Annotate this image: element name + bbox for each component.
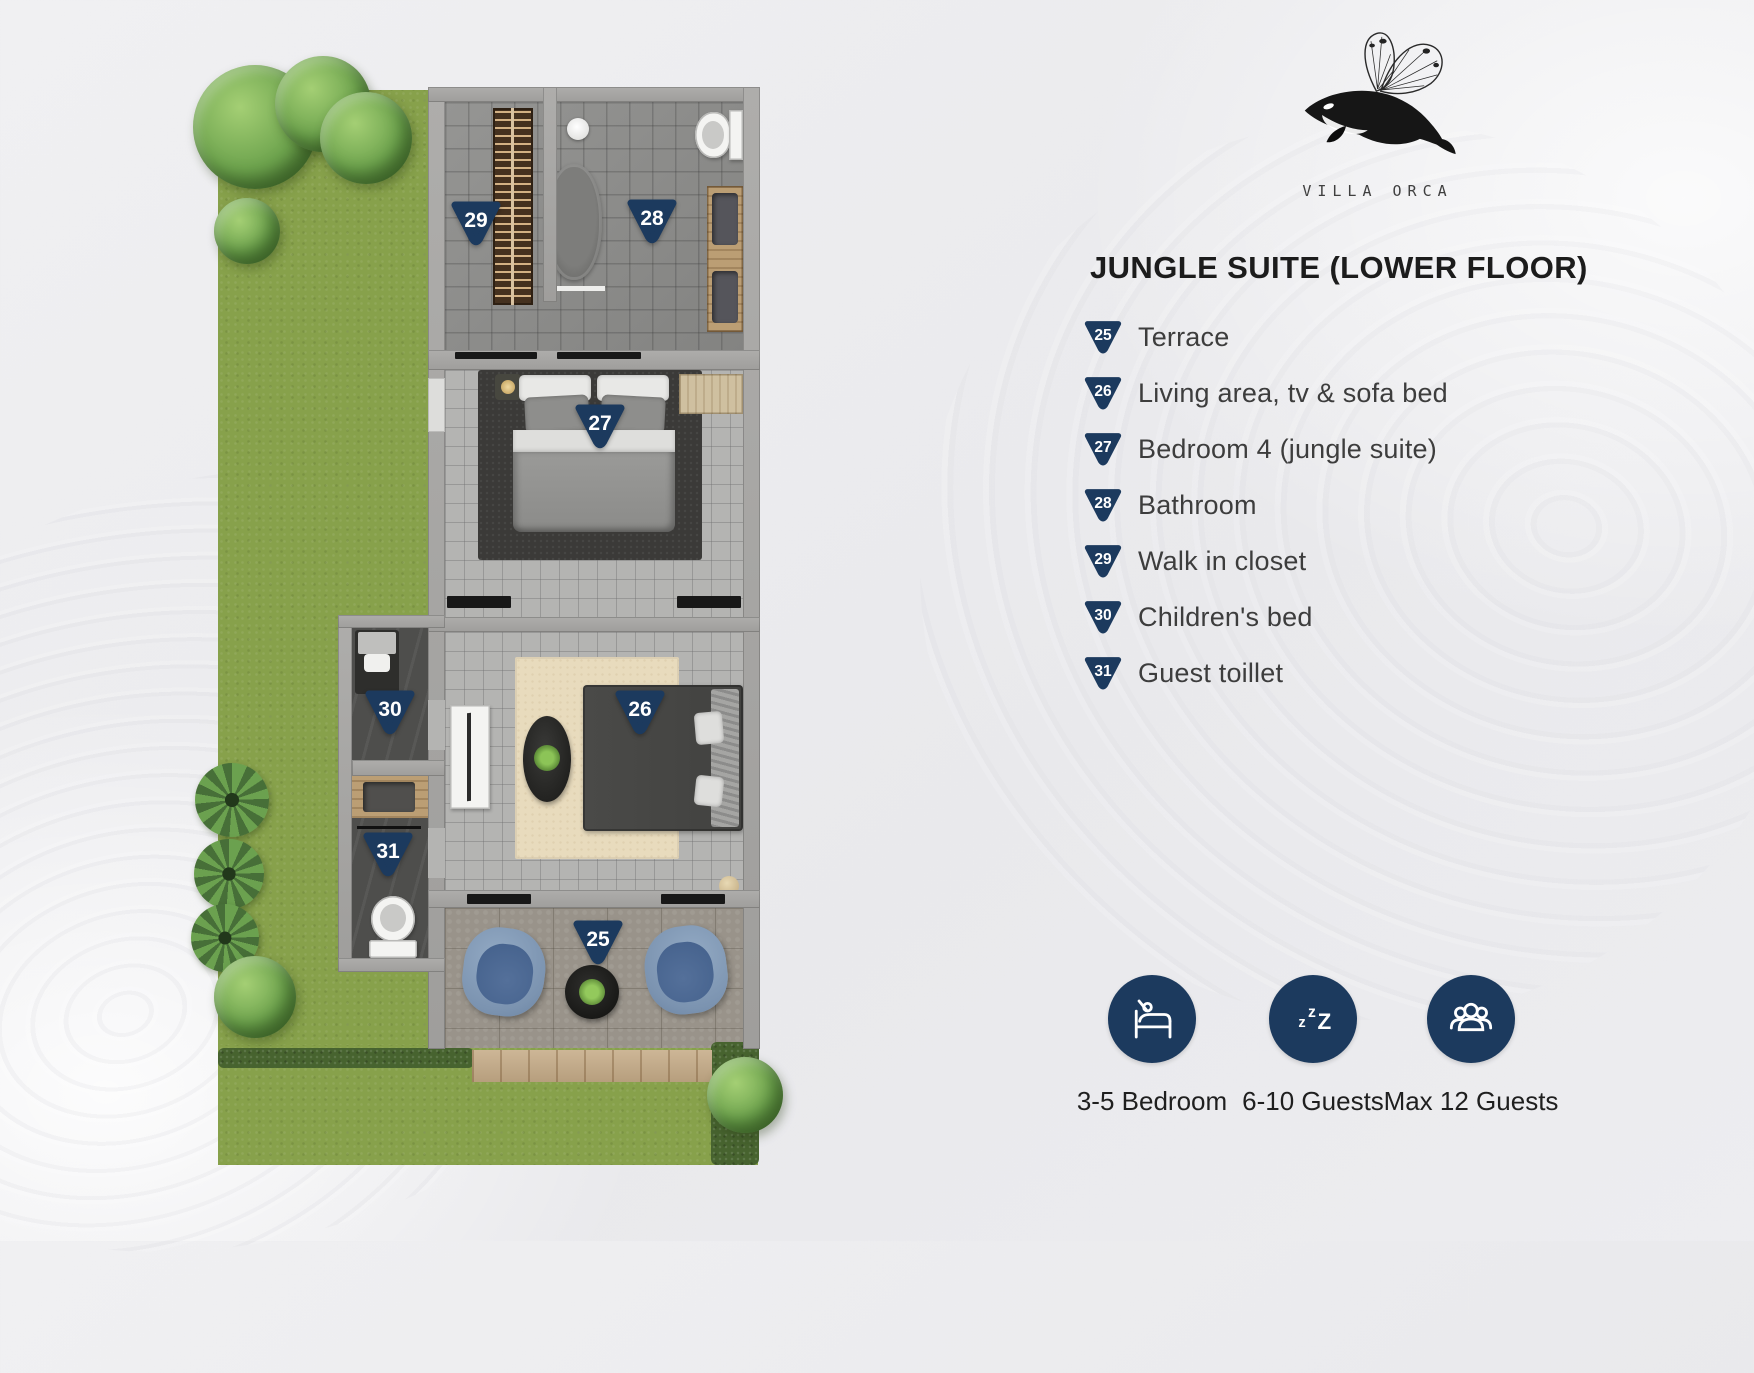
legend-marker-icon: 30: [1083, 599, 1123, 635]
sink-basin: [712, 271, 738, 323]
tree-icon: [320, 92, 412, 184]
door-track: [455, 352, 537, 359]
toilet: [695, 112, 731, 158]
guest-toilet-door-gap: [428, 828, 445, 878]
legend-label: Terrace: [1138, 322, 1229, 353]
svg-text:26: 26: [1094, 383, 1112, 400]
towel-rail: [357, 826, 421, 829]
legend-marker-icon: 25: [1083, 319, 1123, 355]
svg-text:26: 26: [628, 698, 651, 721]
legend-row-closet: 29 Walk in closet: [1083, 542, 1448, 580]
plan-marker-31: 31: [361, 830, 415, 878]
svg-text:Z: Z: [1318, 1009, 1332, 1034]
terrace-chair-seat: [654, 939, 717, 1005]
tv-icon: [467, 713, 471, 801]
pendant-light-icon: [567, 118, 589, 140]
sleep-zzz-icon: z z Z: [1269, 975, 1357, 1063]
plan-marker-26: 26: [613, 688, 667, 736]
svg-text:27: 27: [588, 412, 611, 435]
legend-row-bathroom: 28 Bathroom: [1083, 486, 1448, 524]
tv-console: [450, 705, 490, 809]
coffee-table: [523, 716, 571, 802]
plan-marker-28: 28: [625, 197, 679, 245]
vanity-counter: [707, 186, 743, 332]
legend-marker-icon: 28: [1083, 487, 1123, 523]
svg-text:25: 25: [1094, 327, 1112, 344]
bed-duvet: [513, 452, 675, 532]
annex-wall-bottom: [338, 958, 445, 972]
legend-label: Bathroom: [1138, 490, 1257, 521]
svg-text:25: 25: [586, 928, 610, 951]
door-track: [557, 352, 641, 359]
plan-marker-25: 25: [571, 918, 625, 966]
annex-wall-mid: [352, 760, 445, 776]
toilet-cistern: [729, 110, 743, 160]
svg-text:30: 30: [1094, 607, 1112, 624]
double-bed: [513, 372, 675, 532]
floorplan: 25 26 27 28 29 30 31: [205, 60, 765, 1165]
stat-label: Max 12 Guests: [1361, 1086, 1581, 1117]
legend-marker-icon: 31: [1083, 655, 1123, 691]
legend-marker-icon: 27: [1083, 431, 1123, 467]
wall-top: [428, 87, 760, 102]
svg-text:31: 31: [376, 840, 400, 863]
hedge-row: [218, 1048, 474, 1068]
legend-label: Bedroom 4 (jungle suite): [1138, 434, 1437, 465]
sofa-pillow: [694, 775, 725, 808]
brand-name: VILLA ORCA: [1270, 182, 1485, 200]
wall-bedroom-living: [428, 617, 760, 632]
legend-row-guest-toilet: 31 Guest toillet: [1083, 654, 1448, 692]
bush-icon: [214, 956, 296, 1038]
legend-label: Children's bed: [1138, 602, 1313, 633]
svg-text:27: 27: [1094, 439, 1111, 456]
legend-label: Walk in closet: [1138, 546, 1306, 577]
bed-icon: [1108, 975, 1196, 1063]
svg-text:31: 31: [1094, 663, 1112, 680]
legend-label: Guest toillet: [1138, 658, 1283, 689]
legend-row-childrens-bed: 30 Children's bed: [1083, 598, 1448, 636]
sofa-pillow: [694, 711, 725, 745]
guests-group-icon: [1427, 975, 1515, 1063]
svg-text:28: 28: [640, 207, 664, 230]
annex-wall-top: [338, 615, 445, 628]
legend-row-living: 26 Living area, tv & sofa bed: [1083, 374, 1448, 412]
toilet-seat: [702, 121, 724, 149]
childrens-room-door-gap: [428, 700, 445, 750]
plant-icon: [534, 745, 560, 771]
annex-wall-left: [338, 615, 352, 972]
bush-icon: [707, 1057, 783, 1133]
terrace-door-threshold: [661, 894, 725, 904]
terrace-door-threshold: [467, 894, 531, 904]
legend-row-terrace: 25 Terrace: [1083, 318, 1448, 356]
wooden-deck-step: [472, 1050, 712, 1082]
legend-marker-icon: 29: [1083, 543, 1123, 579]
terrace-chair-seat: [473, 941, 536, 1007]
svg-text:29: 29: [464, 209, 487, 232]
childrens-bed: [355, 630, 399, 694]
svg-text:29: 29: [1094, 551, 1112, 568]
plan-marker-29: 29: [449, 199, 503, 247]
sink-basin: [712, 193, 738, 245]
legend-row-bedroom: 27 Bedroom 4 (jungle suite): [1083, 430, 1448, 468]
svg-text:z: z: [1298, 1015, 1305, 1031]
tree-icon: [214, 198, 280, 264]
toilet-seat: [380, 904, 406, 932]
bedroom-door-gap: [428, 378, 445, 432]
window-threshold: [447, 596, 511, 608]
legend-marker-icon: 26: [1083, 375, 1123, 411]
sink-basin: [363, 782, 415, 812]
wardrobe-rail: [511, 108, 514, 305]
terrace-plant-pot: [565, 965, 619, 1019]
stat-max-guests: Max 12 Guests: [1361, 975, 1581, 1117]
guest-toilet-base: [369, 940, 417, 958]
plan-marker-27: 27: [573, 402, 627, 450]
plan-marker-30: 30: [363, 688, 417, 736]
childrens-bed-pillow: [364, 654, 390, 672]
palm-tree-icon: [195, 763, 269, 837]
svg-text:z: z: [1308, 1004, 1316, 1021]
svg-text:30: 30: [378, 698, 401, 721]
palm-tree-icon: [194, 839, 264, 909]
guest-toilet-bowl: [371, 896, 415, 942]
bedroom-bench: [679, 374, 743, 414]
childrens-bed-sheet: [358, 632, 396, 654]
page-title: JUNGLE SUITE (LOWER FLOOR): [1090, 250, 1690, 286]
window-threshold: [677, 596, 741, 608]
guest-toilet-counter: [352, 776, 428, 818]
legend: 25 Terrace 26 Living area, tv & sofa bed…: [1083, 318, 1448, 692]
plant-icon: [579, 979, 605, 1005]
svg-text:28: 28: [1094, 495, 1112, 512]
wall-closet-divider: [543, 87, 557, 302]
legend-label: Living area, tv & sofa bed: [1138, 378, 1448, 409]
orca-butterfly-logo-icon: [1295, 26, 1460, 178]
